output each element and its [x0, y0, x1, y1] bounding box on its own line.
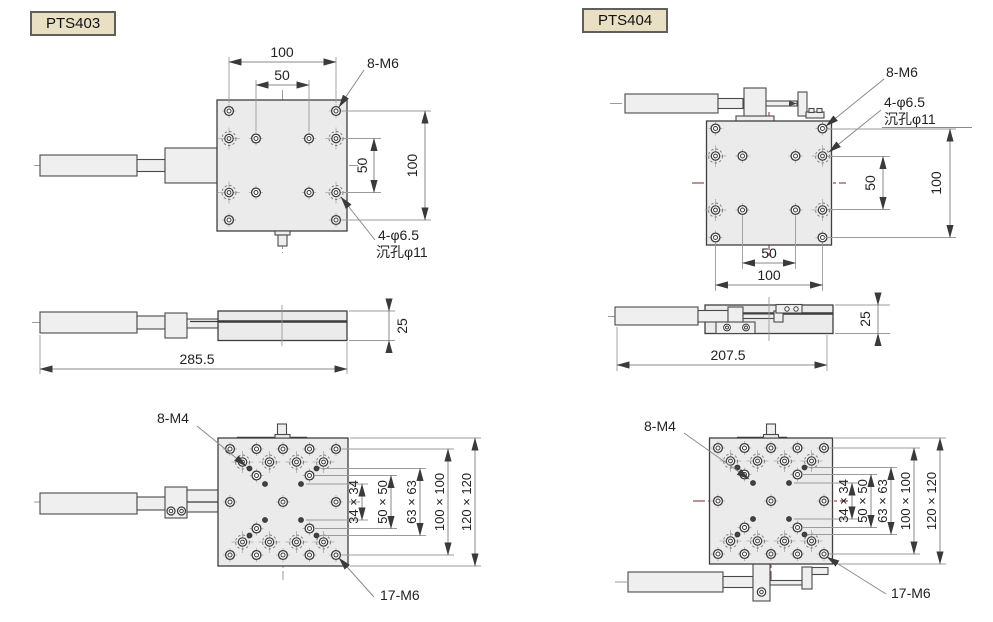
pts403-bottom-knob-collar [275, 231, 290, 235]
pts404-bottom-stop-bracket [802, 567, 812, 589]
dim-404-height: 25 [857, 311, 873, 327]
dim-403-top-100: 100 [270, 44, 294, 60]
pts403-bottom-micrometer-knob [40, 493, 137, 514]
pts403-bottom-micrometer-shaft [137, 497, 167, 510]
pts404-top-micrometer-knob [625, 94, 718, 113]
pts403-side-micrometer-shaft [137, 316, 165, 329]
pts404-top-view: 8-M6 4-φ6.5 沉孔φ11 50 100 50 [610, 64, 972, 291]
note-404-8m4: 8-M4 [644, 418, 676, 434]
pts403-bottom-coupling [187, 490, 218, 512]
note-403-17m6: 17-M6 [380, 587, 420, 603]
pts403-top-knob [278, 424, 287, 435]
pts404-bottom-stop-foot [812, 568, 828, 575]
pts403-top-view: 100 50 50 100 8-M6 4-φ6.5 沉孔φ11 [34, 44, 431, 260]
pts403-side-micrometer-body [165, 313, 187, 338]
dim-404-50x50: 50 × 50 [855, 479, 870, 523]
dim-403-63x63: 63 × 63 [404, 480, 419, 524]
dim-404-bottom-50: 50 [761, 245, 777, 261]
note-404-4phi65: 4-φ6.5 [884, 94, 925, 110]
pts403-top-plate [217, 100, 347, 231]
dim-403-top-50: 50 [274, 67, 290, 83]
pts403-side-coupling [187, 319, 218, 328]
note-403-8m6: 8-M6 [367, 55, 399, 71]
pts404-side-micrometer-knob [615, 307, 698, 325]
pts403-bottom-knob [278, 235, 287, 246]
dim-403-length: 285.5 [179, 351, 214, 367]
dim-403-height: 25 [394, 318, 410, 334]
dim-404-100x100: 100 × 100 [898, 472, 913, 530]
pts403-bottom-view: 34 × 34 50 × 50 63 × 63 100 × 100 120 × … [34, 410, 481, 603]
pts404-side-micrometer-shaft [698, 311, 728, 323]
note-404-counterbore: 沉孔φ11 [884, 111, 936, 127]
pts404-bottom-micrometer-shaft [723, 577, 753, 588]
dim-403-right-50: 50 [354, 158, 370, 174]
dim-404-34x34: 34 × 34 [836, 479, 851, 523]
note-404-17m6: 17-M6 [891, 585, 931, 601]
dim-404-right-100: 100 [928, 171, 944, 195]
pts404-top-micrometer-shaft [718, 99, 743, 109]
dim-404-63x63: 63 × 63 [875, 479, 890, 523]
pts403-top-micrometer-knob [40, 155, 137, 176]
pts403-top-micrometer-shaft [137, 160, 165, 172]
dim-403-34x34: 34 × 34 [346, 480, 361, 524]
pts403-side-micrometer-knob [40, 312, 137, 333]
pts404-side-view: 207.5 25 [608, 293, 890, 371]
pts404-top-micrometer-bracket [744, 88, 766, 116]
pts404-top-knob [767, 424, 776, 435]
note-404-8m6: 8-M6 [886, 64, 918, 80]
pts404-bottom-spindle [770, 581, 802, 586]
dim-404-bottom-100: 100 [757, 267, 781, 283]
note-403-8m4: 8-M4 [157, 410, 189, 426]
dim-403-right-100: 100 [404, 154, 420, 178]
pts404-top-plate [707, 121, 832, 245]
drawing-sheet: PTS403 PTS404 100 [0, 0, 993, 622]
pts403-top-micrometer-body [165, 148, 217, 183]
dim-404-120x120: 120 × 120 [924, 472, 939, 530]
dim-404-right-50: 50 [862, 175, 878, 191]
pts404-bottom-view: 34 × 34 50 × 50 63 × 63 100 × 100 120 × … [615, 418, 946, 601]
technical-drawing: 100 50 50 100 8-M6 4-φ6.5 沉孔φ11 [0, 0, 993, 622]
note-403-4phi65: 4-φ6.5 [378, 227, 419, 243]
dim-403-120x120: 120 × 120 [459, 473, 474, 531]
note-403-counterbore: 沉孔φ11 [376, 244, 428, 260]
pts404-bottom-micrometer-knob [628, 572, 723, 592]
pts403-side-view: 285.5 25 [32, 299, 410, 374]
dim-403-50x50: 50 × 50 [375, 480, 390, 524]
dim-404-length: 207.5 [710, 347, 745, 363]
dim-403-100x100: 100 × 100 [432, 473, 447, 531]
pts403-side-stage-body [218, 311, 347, 341]
